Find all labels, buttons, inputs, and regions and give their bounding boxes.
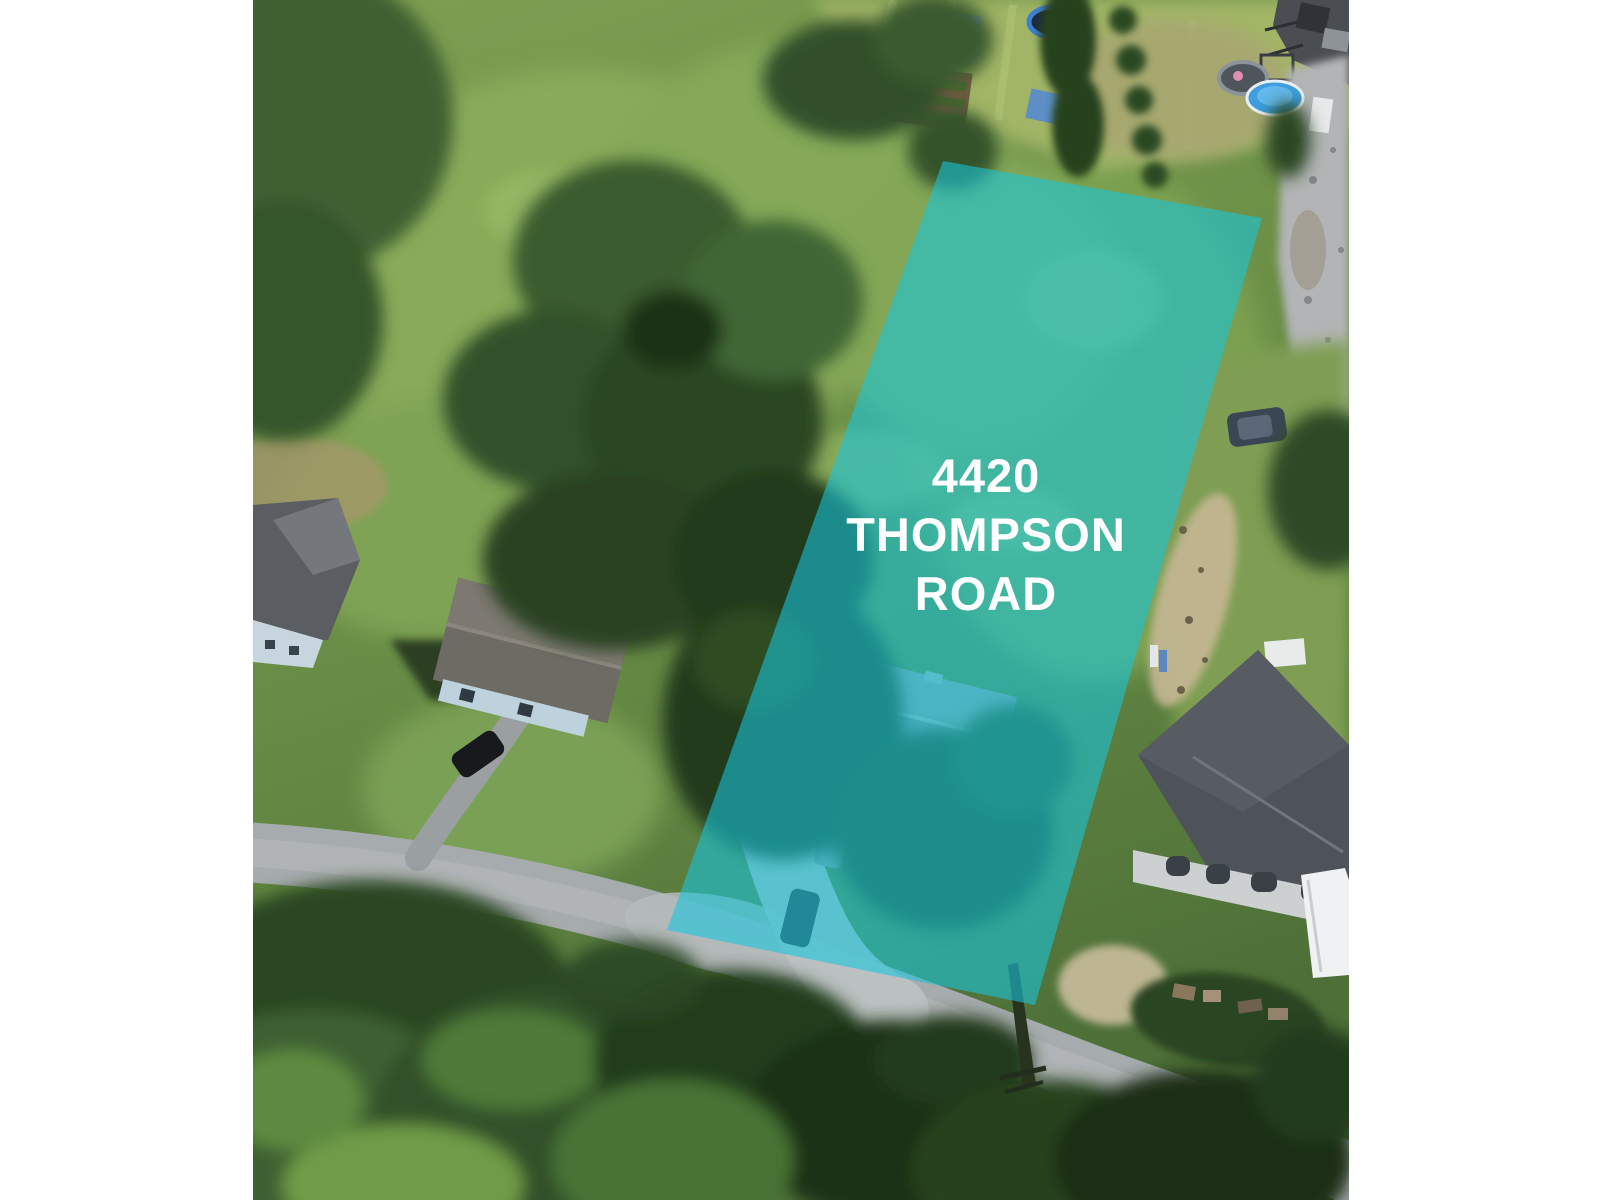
aerial-photo: 4420 THOMPSON ROAD xyxy=(253,0,1349,1200)
address-line-street: THOMPSON xyxy=(846,505,1126,564)
real-estate-aerial-image: 4420 THOMPSON ROAD xyxy=(0,0,1600,1200)
address-line-road: ROAD xyxy=(846,564,1126,623)
aerial-scene xyxy=(253,0,1349,1200)
address-line-number: 4420 xyxy=(846,446,1126,505)
address-label: 4420 THOMPSON ROAD xyxy=(846,446,1126,623)
